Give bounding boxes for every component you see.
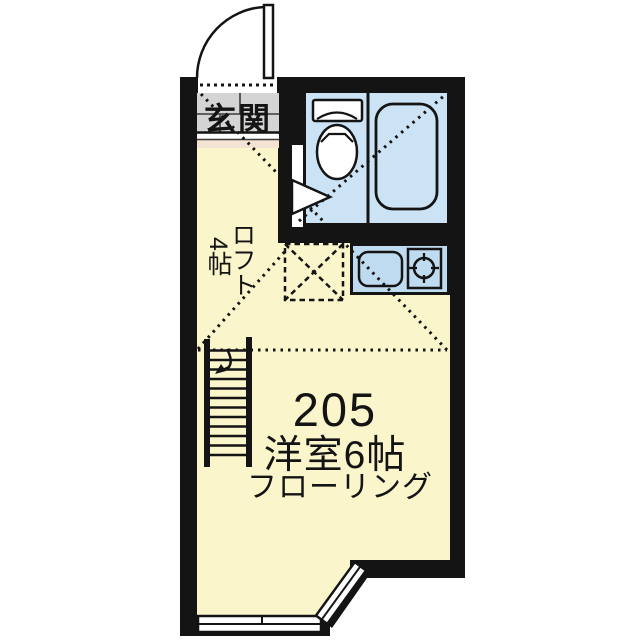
door-swing-arc xyxy=(197,7,264,78)
loft-label: ロフト xyxy=(229,222,254,312)
entrance-door-icon xyxy=(197,5,273,78)
toilet-icon xyxy=(313,100,362,179)
window-bottom xyxy=(198,616,321,632)
floorplan-canvas: 玄関 ロフト 4帖 205 洋室6帖 フローリング xyxy=(0,0,640,640)
bathroom-area xyxy=(305,92,449,225)
loft-size-label: 4帖 xyxy=(205,237,230,297)
door-leaf xyxy=(264,5,273,78)
entrance-label: 玄関 xyxy=(197,94,279,140)
floorplan-drawing xyxy=(0,0,640,640)
genkan-step xyxy=(197,139,279,148)
flooring-label: フローリング xyxy=(200,462,480,506)
kitchen-counter xyxy=(352,245,449,294)
